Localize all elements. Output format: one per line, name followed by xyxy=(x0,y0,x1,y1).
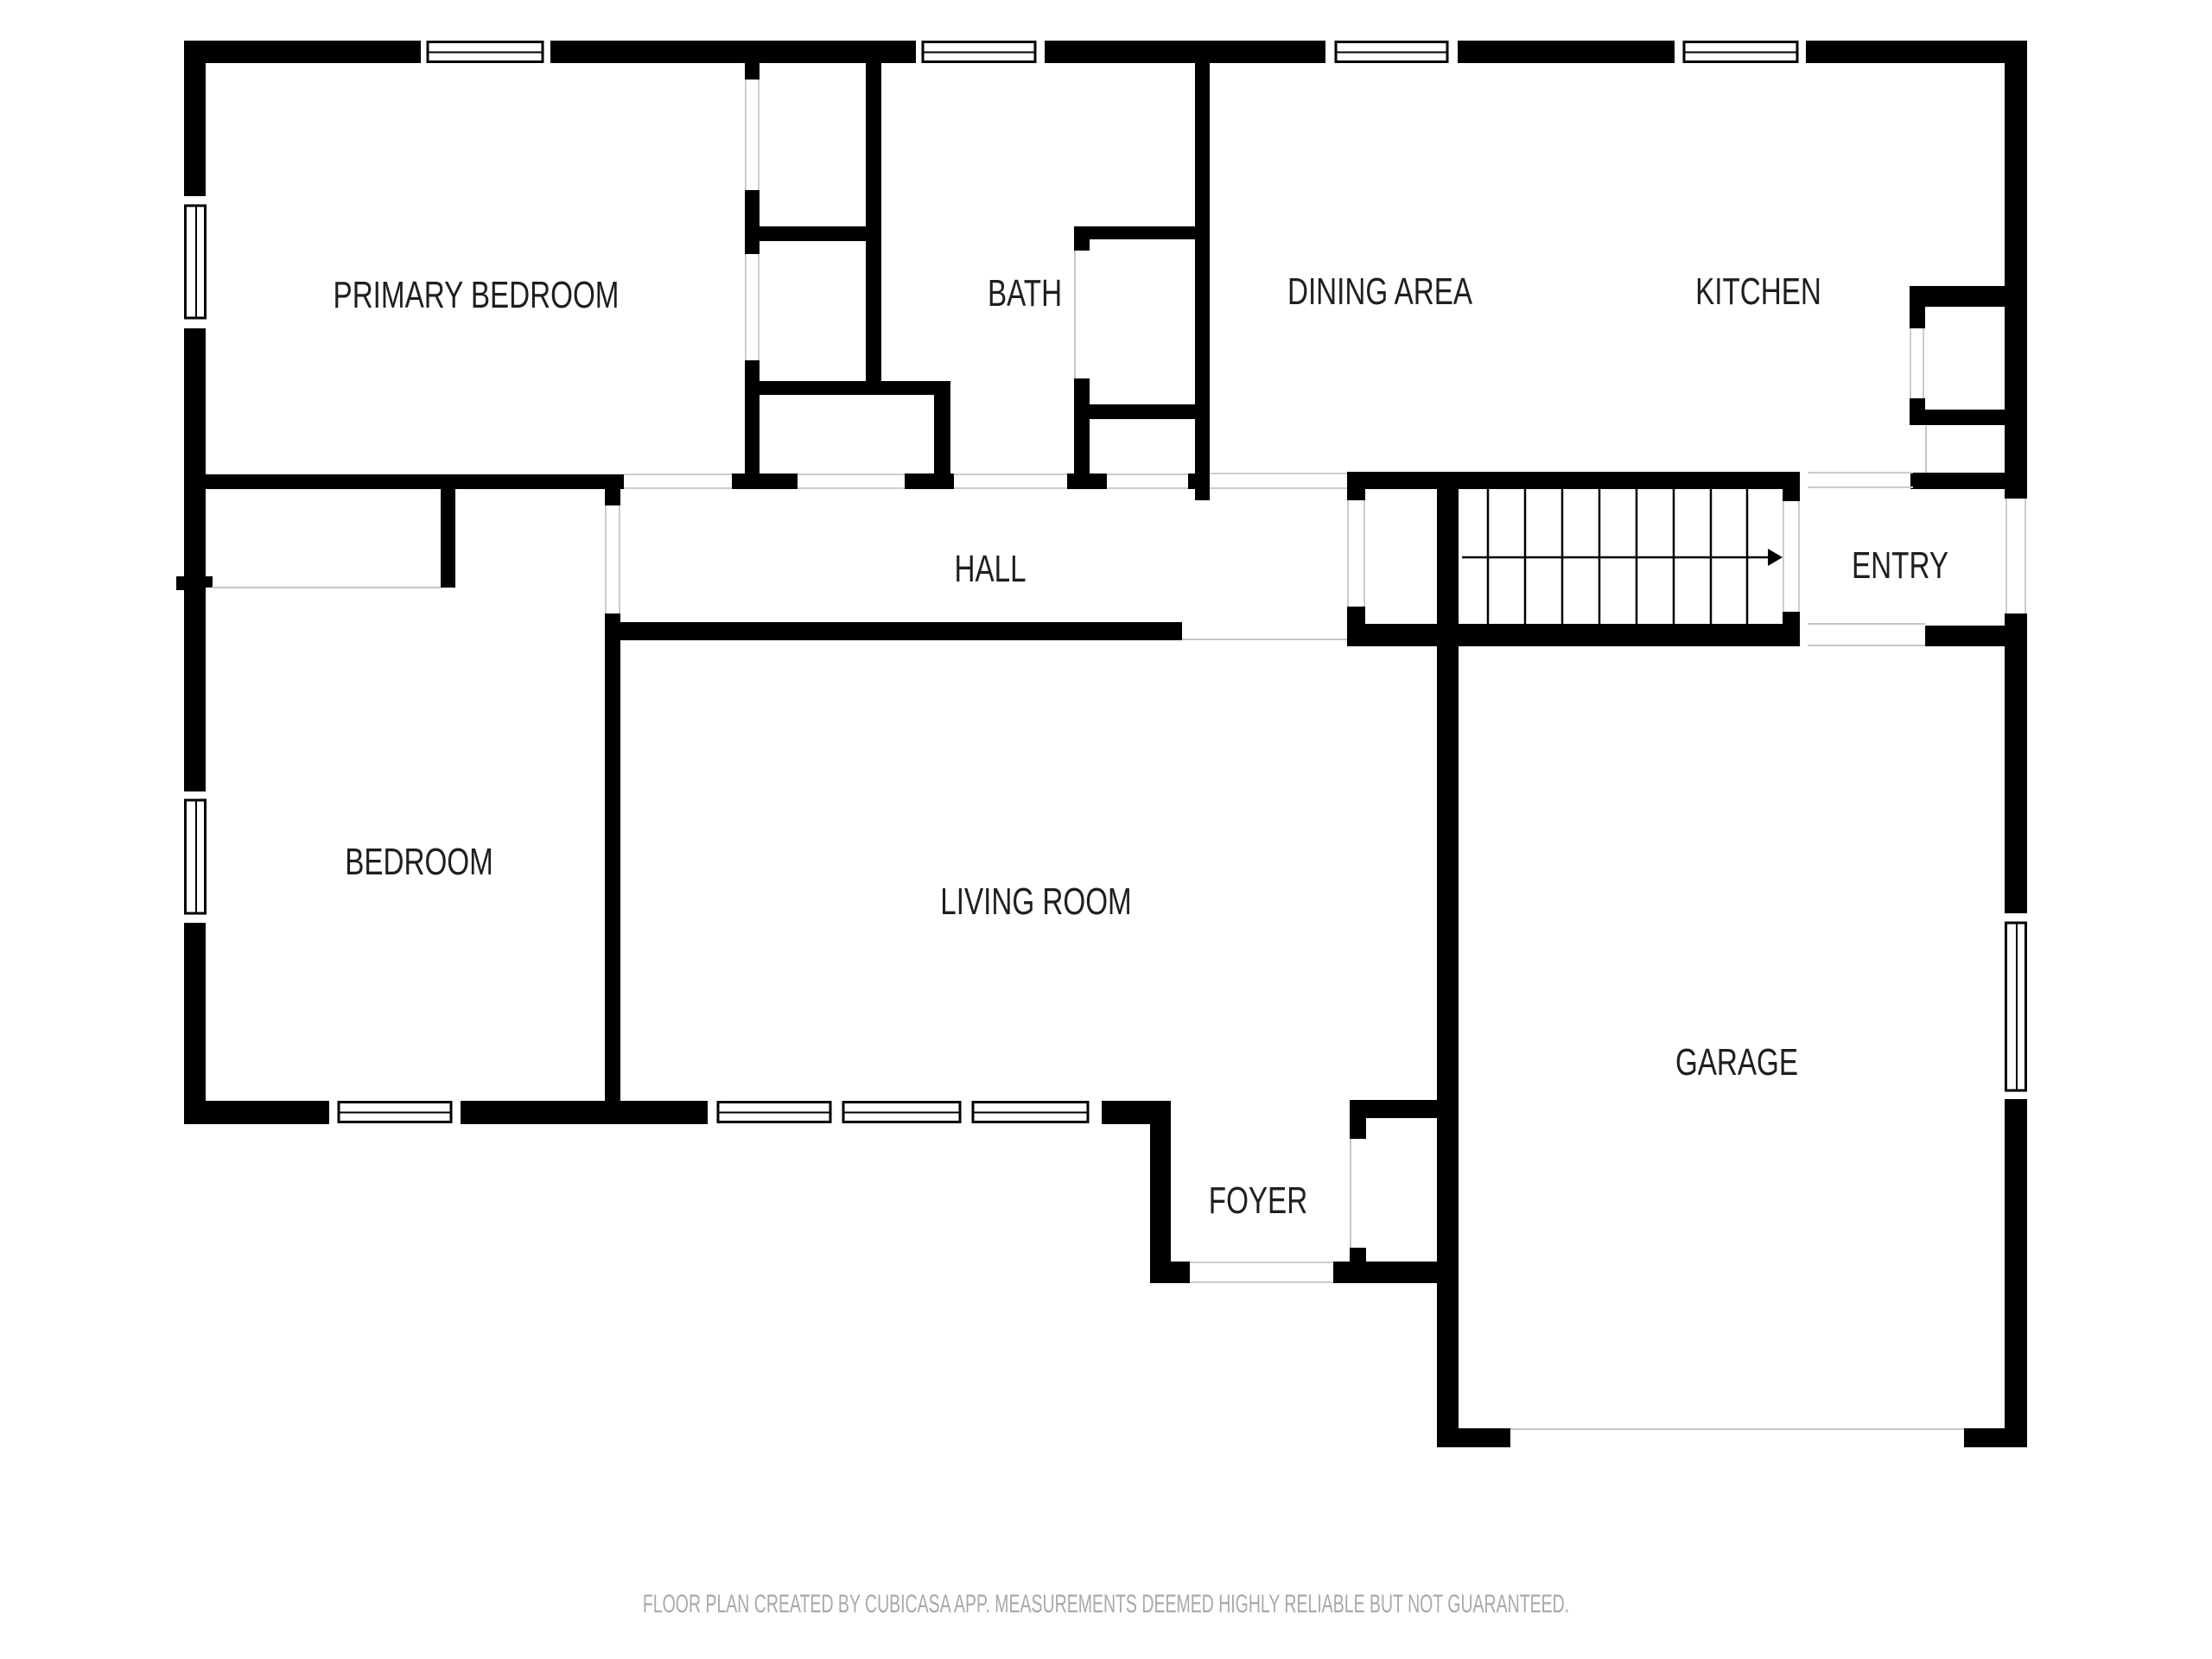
svg-text:DINING AREA: DINING AREA xyxy=(1287,271,1472,314)
svg-text:GARAGE: GARAGE xyxy=(1675,1042,1798,1084)
svg-text:KITCHEN: KITCHEN xyxy=(1695,271,1821,314)
svg-text:BATH: BATH xyxy=(988,273,1062,315)
svg-text:HALL: HALL xyxy=(954,549,1026,591)
svg-text:FLOOR PLAN CREATED BY CUBICASA: FLOOR PLAN CREATED BY CUBICASA APP. MEAS… xyxy=(643,1590,1569,1618)
svg-text:ENTRY: ENTRY xyxy=(1852,545,1948,588)
svg-text:PRIMARY BEDROOM: PRIMARY BEDROOM xyxy=(334,275,620,317)
svg-text:FOYER: FOYER xyxy=(1209,1180,1307,1223)
svg-text:BEDROOM: BEDROOM xyxy=(345,842,493,884)
svg-text:LIVING ROOM: LIVING ROOM xyxy=(940,881,1131,924)
